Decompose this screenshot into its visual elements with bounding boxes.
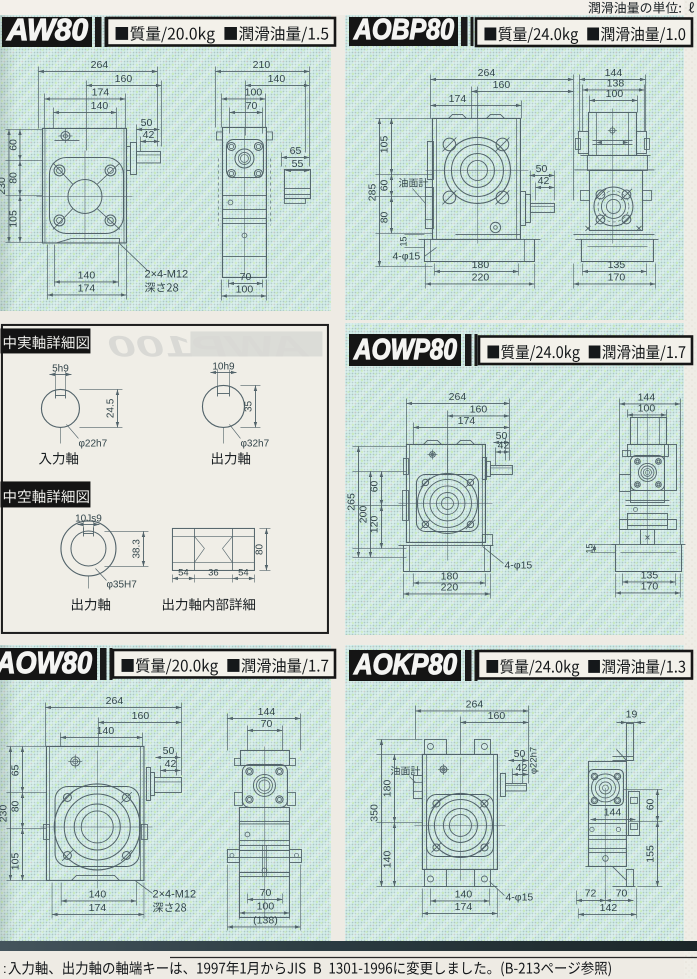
svg-text:54: 54 <box>238 567 249 578</box>
svg-text:65: 65 <box>290 145 302 157</box>
svg-text:160: 160 <box>115 73 133 85</box>
svg-text:50: 50 <box>536 163 548 175</box>
svg-text:60: 60 <box>7 139 19 151</box>
svg-text:160: 160 <box>493 79 511 91</box>
svg-text:80: 80 <box>378 211 390 223</box>
svg-text:160: 160 <box>132 710 150 722</box>
svg-text:350: 350 <box>368 804 380 822</box>
svg-text:180: 180 <box>472 259 490 271</box>
svg-text:60: 60 <box>644 798 656 810</box>
svg-text:174: 174 <box>449 93 467 105</box>
svg-text:105: 105 <box>7 210 19 228</box>
svg-text:35: 35 <box>243 400 254 412</box>
svg-text:174: 174 <box>455 901 473 913</box>
svg-text:155: 155 <box>644 845 656 863</box>
svg-text:80: 80 <box>254 543 265 555</box>
svg-text:10h9: 10h9 <box>212 361 235 372</box>
svg-text:140: 140 <box>381 851 393 869</box>
svg-text:174: 174 <box>458 415 476 427</box>
svg-text:70: 70 <box>240 271 252 283</box>
svg-text:220: 220 <box>472 271 490 283</box>
svg-text:120: 120 <box>368 516 380 534</box>
svg-text:264: 264 <box>106 695 124 707</box>
svg-text:2×4-M12: 2×4-M12 <box>152 888 196 900</box>
svg-text:AOKP80: AOKP80 <box>353 649 457 681</box>
svg-text:160: 160 <box>470 403 488 415</box>
svg-text::: : <box>3 961 7 976</box>
svg-text:10Js9: 10Js9 <box>75 513 102 524</box>
svg-text:100: 100 <box>257 900 275 912</box>
svg-text:70: 70 <box>261 718 273 730</box>
svg-text:AOBP80: AOBP80 <box>353 14 454 46</box>
svg-text:15: 15 <box>398 236 408 246</box>
svg-text:φ22h7: φ22h7 <box>528 747 539 774</box>
svg-text:80: 80 <box>7 172 19 184</box>
svg-text:(138): (138) <box>253 914 278 926</box>
svg-text:174: 174 <box>92 86 110 98</box>
svg-text:264: 264 <box>466 698 484 710</box>
svg-text:50: 50 <box>141 117 153 129</box>
svg-text:264: 264 <box>449 391 467 403</box>
svg-text:2×4-M12: 2×4-M12 <box>144 268 188 280</box>
svg-text:15: 15 <box>584 543 594 553</box>
svg-text:174: 174 <box>78 282 96 294</box>
svg-text:264: 264 <box>91 59 109 71</box>
svg-text:19: 19 <box>626 708 638 720</box>
svg-text:140: 140 <box>78 269 96 281</box>
svg-text:4-φ15: 4-φ15 <box>505 891 533 903</box>
svg-text:140: 140 <box>91 100 109 112</box>
svg-text:42: 42 <box>516 762 528 774</box>
svg-text:140: 140 <box>97 725 115 737</box>
svg-text:142: 142 <box>600 902 618 914</box>
svg-text:4-φ15: 4-φ15 <box>392 250 420 262</box>
svg-text:180: 180 <box>381 780 393 798</box>
svg-text:264: 264 <box>478 67 496 79</box>
svg-text:105: 105 <box>9 853 21 871</box>
svg-text:φ22h7: φ22h7 <box>78 438 107 449</box>
svg-text:80: 80 <box>9 800 21 812</box>
svg-text:36: 36 <box>208 567 219 578</box>
svg-text:100: 100 <box>606 88 624 100</box>
svg-text:4-φ15: 4-φ15 <box>504 559 532 571</box>
svg-text:42: 42 <box>143 129 155 141</box>
svg-text:AOW80: AOW80 <box>0 645 92 680</box>
svg-text:174: 174 <box>89 902 107 914</box>
svg-text:50: 50 <box>163 745 175 757</box>
svg-text:60: 60 <box>368 480 380 492</box>
svg-text:285: 285 <box>366 184 378 202</box>
svg-text:140: 140 <box>89 888 107 900</box>
svg-text:144: 144 <box>258 706 276 718</box>
svg-text:170: 170 <box>641 580 659 592</box>
svg-text:38.3: 38.3 <box>131 539 142 559</box>
svg-text:24.5: 24.5 <box>105 398 116 418</box>
svg-text:65: 65 <box>9 764 21 776</box>
svg-text:42: 42 <box>165 758 177 770</box>
svg-text:140: 140 <box>268 73 286 85</box>
svg-text:φ35H7: φ35H7 <box>106 579 137 590</box>
svg-text:55: 55 <box>292 158 304 170</box>
svg-text:160: 160 <box>488 710 506 722</box>
svg-text:105: 105 <box>378 136 390 154</box>
svg-text:54: 54 <box>178 567 189 578</box>
svg-text:220: 220 <box>441 581 459 593</box>
svg-text:72: 72 <box>585 887 597 899</box>
svg-text:144: 144 <box>604 806 622 818</box>
svg-text:AOWP80: AOWP80 <box>353 334 457 366</box>
svg-text:100: 100 <box>245 86 263 98</box>
svg-text:135: 135 <box>608 259 626 271</box>
svg-text:42: 42 <box>498 439 510 451</box>
svg-text:φ32h7: φ32h7 <box>240 438 269 449</box>
svg-text:170: 170 <box>608 271 626 283</box>
svg-text:100: 100 <box>236 283 254 295</box>
svg-text:70: 70 <box>246 100 258 112</box>
svg-text:140: 140 <box>455 888 473 900</box>
svg-text:AW80: AW80 <box>6 12 88 47</box>
svg-text:100: 100 <box>638 402 656 414</box>
svg-text:230: 230 <box>0 805 9 823</box>
svg-text:42: 42 <box>538 175 550 187</box>
svg-text:265: 265 <box>345 493 357 511</box>
svg-text:50: 50 <box>514 748 526 760</box>
svg-text:210: 210 <box>253 59 271 71</box>
svg-text:60: 60 <box>378 179 390 191</box>
svg-text:70: 70 <box>616 887 628 899</box>
svg-text:70: 70 <box>260 887 272 899</box>
svg-text:AWP100: AWP100 <box>108 330 310 363</box>
svg-text:5h9: 5h9 <box>52 363 69 374</box>
